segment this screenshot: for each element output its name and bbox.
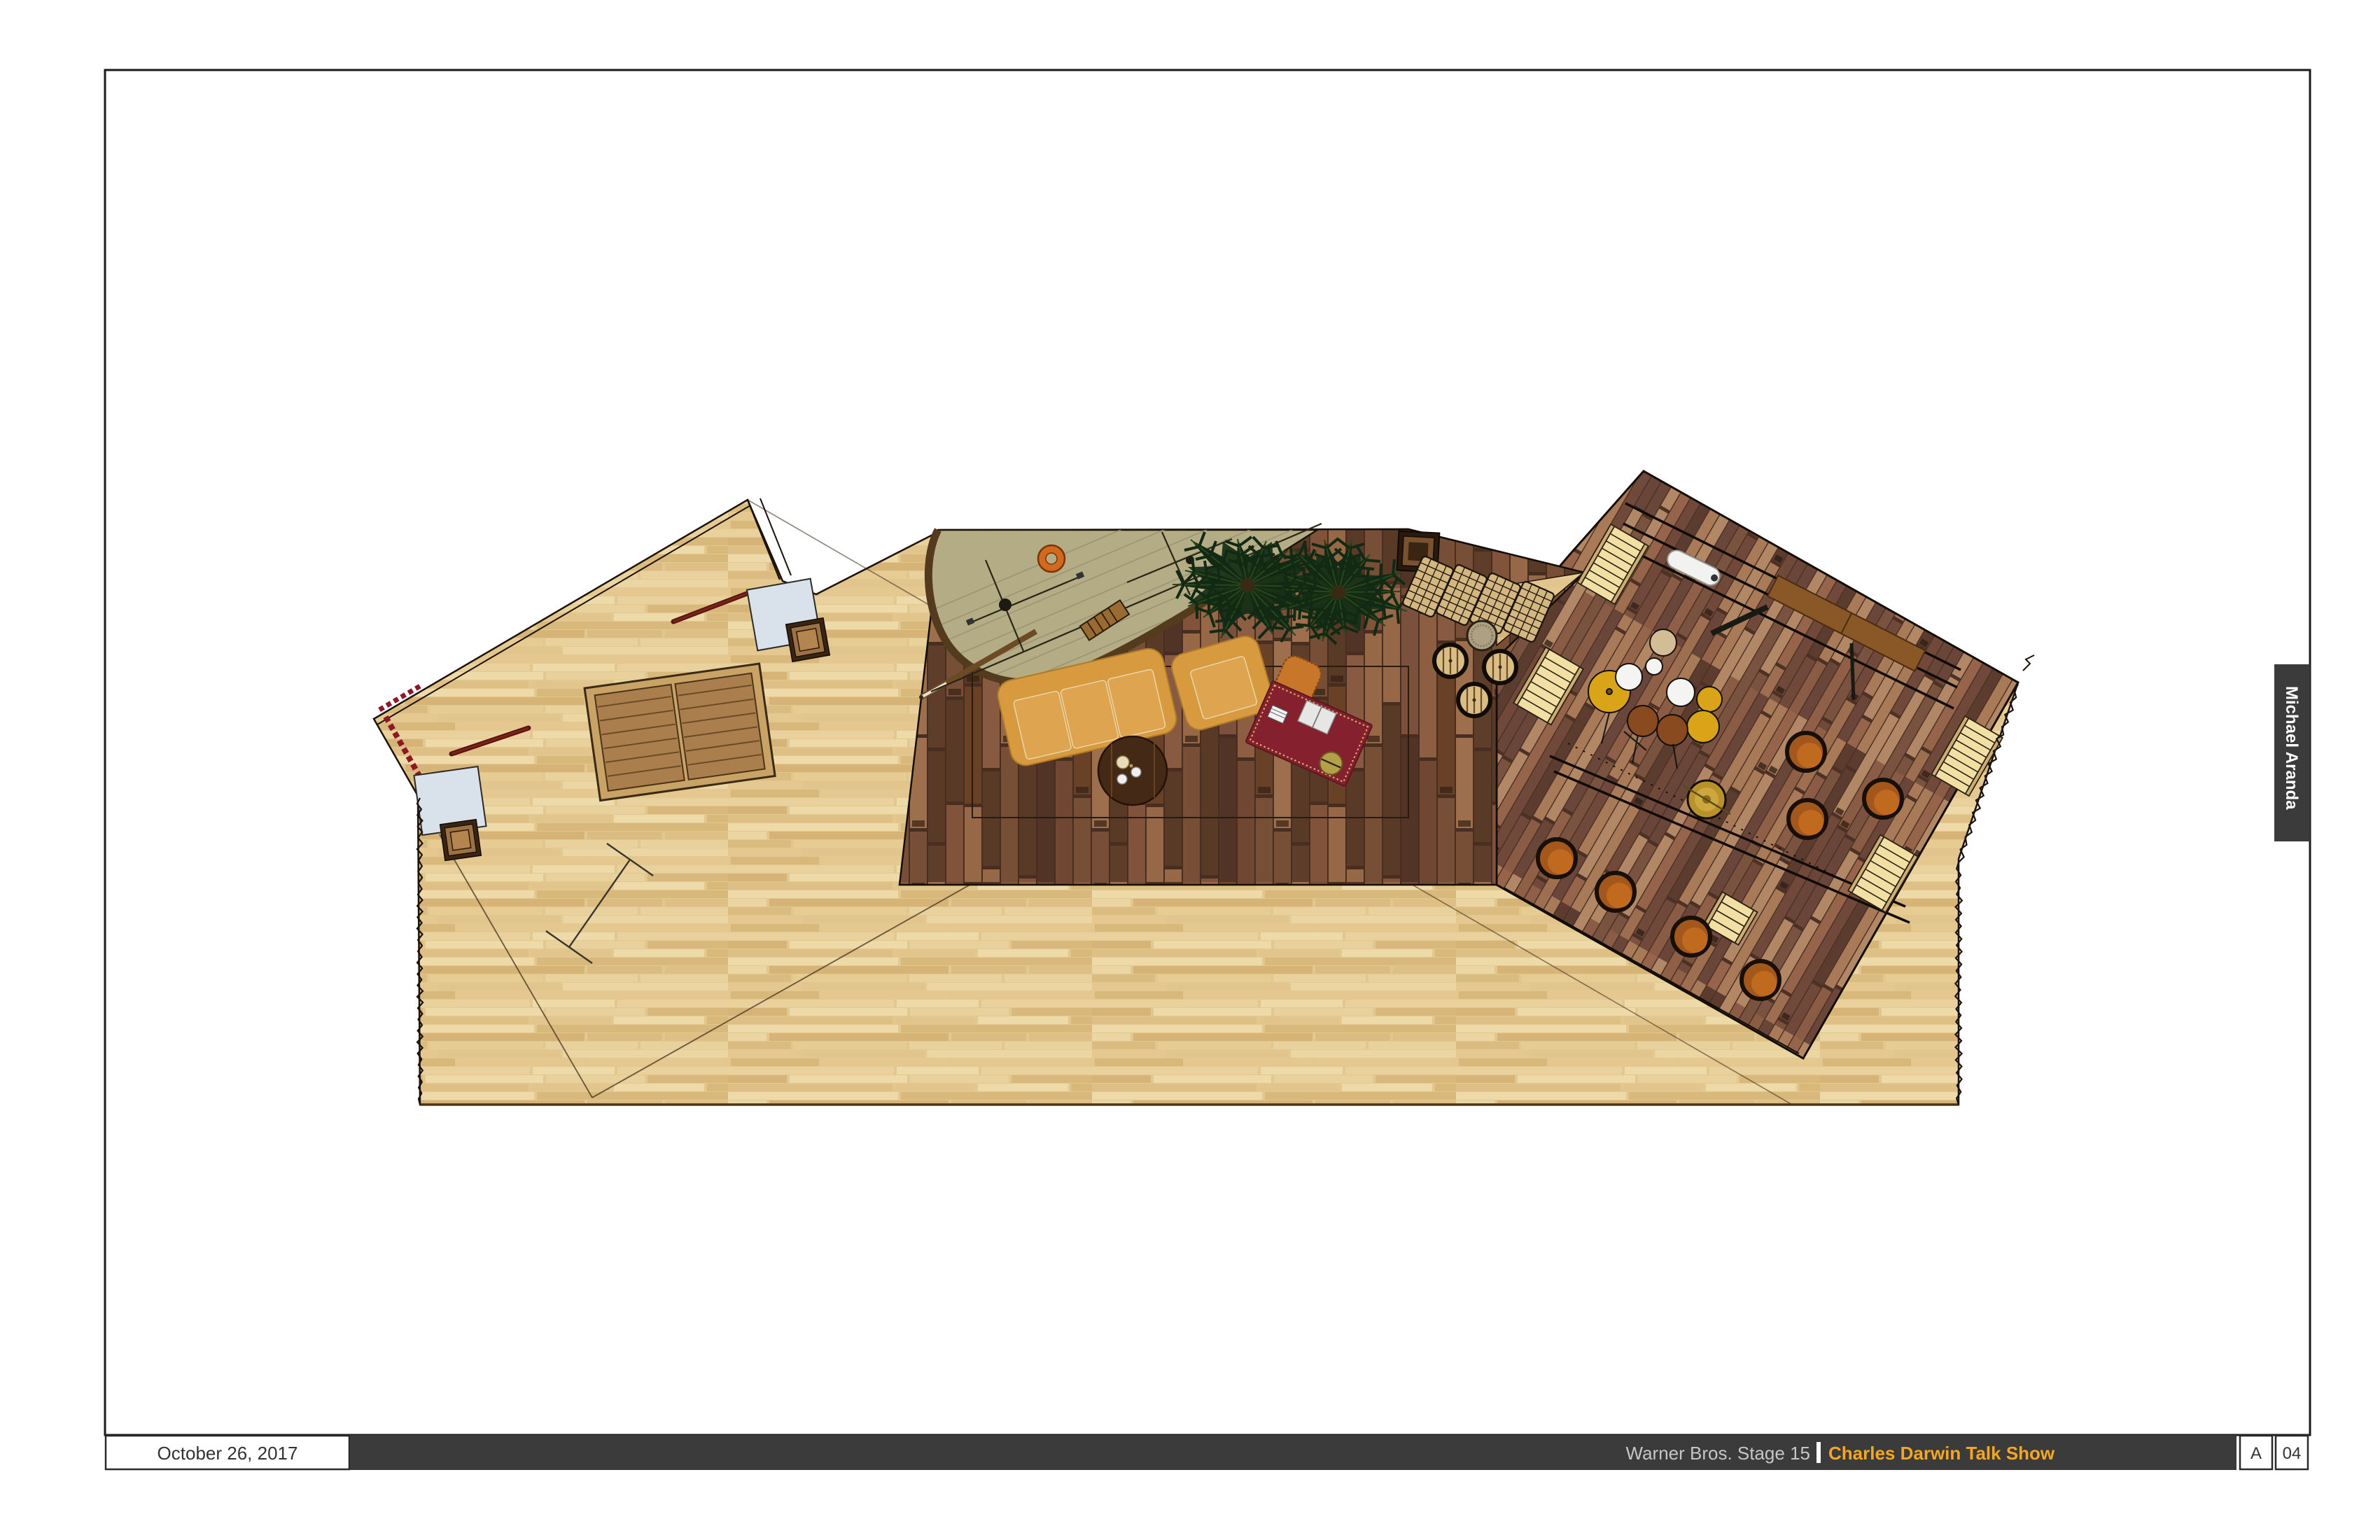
svg-text:Charles Darwin Talk Show: Charles Darwin Talk Show xyxy=(1828,1443,2055,1464)
svg-text:04: 04 xyxy=(2283,1444,2302,1463)
svg-text:A: A xyxy=(2250,1444,2262,1463)
svg-text:October 26, 2017: October 26, 2017 xyxy=(157,1443,298,1464)
svg-text:Michael Aranda: Michael Aranda xyxy=(2282,686,2301,810)
svg-text:Warner Bros. Stage 15: Warner Bros. Stage 15 xyxy=(1626,1443,1811,1464)
